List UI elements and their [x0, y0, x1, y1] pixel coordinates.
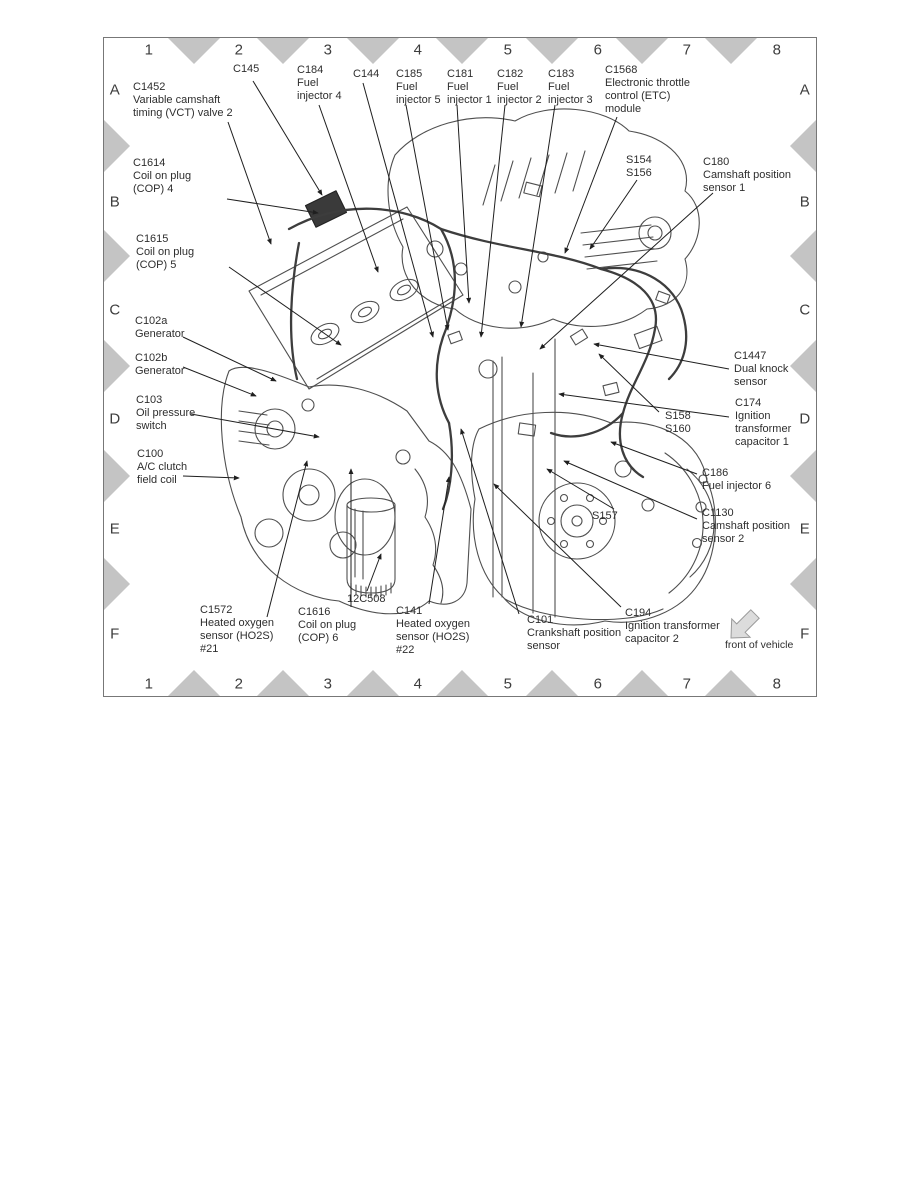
callout-12c508: 12C508 — [347, 593, 397, 606]
callout-c101: C101 Crankshaft position sensor — [527, 614, 627, 653]
grid-triangle — [705, 670, 757, 696]
callout-c1130: C1130 Camshaft position sensor 2 — [702, 507, 798, 546]
connector-code: C182 — [497, 68, 549, 81]
part-code: 12C508 — [347, 593, 397, 606]
connector-code: C185 — [396, 68, 448, 81]
connector-desc: Dual knock sensor — [734, 363, 794, 389]
grid-triangle — [104, 450, 130, 502]
callout-c100: C100 A/C clutch field coil — [137, 448, 193, 487]
grid-triangle — [436, 38, 488, 64]
connector-code: C1615 — [136, 233, 202, 246]
grid-triangle — [347, 38, 399, 64]
connector-desc: Coil on plug (COP) 4 — [133, 170, 199, 196]
connector-desc: Heated oxygen sensor (HO2S) #22 — [396, 618, 474, 657]
connector-code: C103 — [136, 394, 200, 407]
connector-code: C1447 — [734, 350, 794, 363]
leader-c182 — [481, 105, 505, 337]
front-of-vehicle-arrow-icon — [731, 610, 759, 638]
connector-desc: Generator — [135, 365, 195, 378]
callout-c1447: C1447 Dual knock sensor — [734, 350, 794, 389]
leader-c1572 — [267, 461, 307, 617]
callout-c194: C194 Ignition transformer capacitor 2 — [625, 607, 731, 646]
grid-col-bottom-8: 8 — [773, 676, 782, 693]
grid-triangle — [436, 670, 488, 696]
connector-code: C102a — [135, 315, 195, 328]
grid-col-top-5: 5 — [504, 42, 513, 59]
callout-c1615: C1615 Coil on plug (COP) 5 — [136, 233, 202, 272]
callout-c1616: C1616 Coil on plug (COP) 6 — [298, 606, 364, 645]
callout-s154-s156: S154 S156 — [626, 154, 666, 180]
connector-code: C100 — [137, 448, 193, 461]
grid-triangles — [104, 38, 816, 696]
connector-desc: Coil on plug (COP) 5 — [136, 246, 202, 272]
grid-triangle — [168, 670, 220, 696]
grid-col-top-7: 7 — [683, 42, 692, 59]
wiring-harness-art — [289, 209, 686, 509]
connector-desc: Heated oxygen sensor (HO2S) #21 — [200, 617, 278, 656]
connector-desc: Fuel injector 4 — [297, 77, 349, 103]
callout-c144: C144 — [353, 68, 393, 81]
manual-diagram-page: 1 2 3 4 5 6 7 8 1 2 3 4 5 6 7 8 A B C D … — [0, 0, 918, 1188]
grid-triangle — [257, 670, 309, 696]
connector-code: C1452 — [133, 81, 233, 94]
connector-desc: A/C clutch field coil — [137, 461, 193, 487]
engine-diagram-art — [103, 37, 817, 697]
grid-triangle — [616, 38, 668, 64]
grid-col-top-4: 4 — [414, 42, 423, 59]
connector-desc: Crankshaft position sensor — [527, 627, 627, 653]
splice-code: S158 S160 — [665, 410, 705, 436]
connector-desc: Camshaft position sensor 1 — [703, 169, 799, 195]
leader-c185 — [406, 105, 448, 330]
grid-row-right-a: A — [800, 82, 811, 99]
grid-triangle — [104, 558, 130, 610]
connector-desc: Ignition transformer capacitor 1 — [735, 410, 797, 449]
callout-c103: C103 Oil pressure switch — [136, 394, 200, 433]
connector-desc: Fuel injector 2 — [497, 81, 549, 107]
leader-12c508 — [367, 554, 381, 591]
callout-c1452: C1452 Variable camshaft timing (VCT) val… — [133, 81, 233, 120]
grid-triangle — [790, 450, 816, 502]
connector-code: C186 — [702, 467, 782, 480]
grid-col-bottom-5: 5 — [504, 676, 513, 693]
front-of-vehicle-label: front of vehicle — [725, 639, 793, 651]
leader-c184 — [319, 105, 378, 272]
callout-c182: C182 Fuel injector 2 — [497, 68, 549, 107]
connector-code: C183 — [548, 68, 600, 81]
callout-s158-s160: S158 S160 — [665, 410, 705, 436]
grid-row-left-d: D — [109, 411, 120, 428]
grid-row-right-d: D — [799, 411, 810, 428]
connector-code: C102b — [135, 352, 195, 365]
connector-code: C181 — [447, 68, 499, 81]
grid-triangle — [168, 38, 220, 64]
callout-c145: C145 — [233, 63, 273, 76]
grid-triangle — [790, 558, 816, 610]
connector-desc: Fuel injector 1 — [447, 81, 499, 107]
grid-row-right-b: B — [800, 194, 811, 211]
callout-c1572: C1572 Heated oxygen sensor (HO2S) #21 — [200, 604, 278, 656]
grid-col-top-2: 2 — [235, 42, 244, 59]
diagram-frame: 1 2 3 4 5 6 7 8 1 2 3 4 5 6 7 8 A B C D … — [103, 37, 817, 697]
callout-c184: C184 Fuel injector 4 — [297, 64, 349, 103]
connector-code: C1616 — [298, 606, 364, 619]
grid-col-top-8: 8 — [773, 42, 782, 59]
callout-c141: C141 Heated oxygen sensor (HO2S) #22 — [396, 605, 474, 657]
leader-c1452 — [228, 122, 271, 244]
leader-c1568 — [565, 117, 617, 253]
connector-code: C1614 — [133, 157, 199, 170]
connector-desc: Electronic throttle control (ETC) module — [605, 77, 699, 116]
connector-desc: Fuel injector 6 — [702, 480, 782, 493]
connector-code: C141 — [396, 605, 474, 618]
callout-c174: C174 Ignition transformer capacitor 1 — [735, 397, 797, 449]
grid-col-bottom-6: 6 — [594, 676, 603, 693]
grid-col-top-6: 6 — [594, 42, 603, 59]
connector-code: C144 — [353, 68, 393, 81]
grid-row-right-e: E — [800, 521, 811, 538]
callout-c1614: C1614 Coil on plug (COP) 4 — [133, 157, 199, 196]
connector-code: C174 — [735, 397, 797, 410]
connector-desc: Fuel injector 5 — [396, 81, 448, 107]
grid-triangle — [104, 230, 130, 282]
grid-row-left-f: F — [110, 626, 120, 643]
leader-c194 — [494, 484, 621, 607]
splice-code: S154 S156 — [626, 154, 666, 180]
leader-c1615 — [229, 267, 341, 345]
leader-c144 — [363, 83, 433, 337]
grid-triangle — [526, 670, 578, 696]
connector-code: C180 — [703, 156, 799, 169]
connector-desc: Camshaft position sensor 2 — [702, 520, 798, 546]
leader-c102a — [183, 337, 276, 381]
grid-row-left-e: E — [110, 521, 121, 538]
grid-col-bottom-7: 7 — [683, 676, 692, 693]
leader-c181 — [457, 105, 469, 303]
callout-c102a: C102a Generator — [135, 315, 195, 341]
callout-c186: C186 Fuel injector 6 — [702, 467, 782, 493]
callout-c102b: C102b Generator — [135, 352, 195, 378]
connector-desc: Ignition transformer capacitor 2 — [625, 620, 731, 646]
grid-triangle — [705, 38, 757, 64]
grid-triangle — [104, 340, 130, 392]
connector-desc: Generator — [135, 328, 195, 341]
grid-col-top-1: 1 — [145, 42, 154, 59]
connector-code: C1130 — [702, 507, 798, 520]
connector-code: C1568 — [605, 64, 699, 77]
grid-col-bottom-1: 1 — [145, 676, 154, 693]
grid-col-bottom-3: 3 — [324, 676, 333, 693]
grid-col-bottom-2: 2 — [235, 676, 244, 693]
connector-code: C101 — [527, 614, 627, 627]
connector-code: C1572 — [200, 604, 278, 617]
grid-triangle — [616, 670, 668, 696]
callout-c183: C183 Fuel injector 3 — [548, 68, 600, 107]
grid-col-bottom-4: 4 — [414, 676, 423, 693]
callout-s157: S157 — [592, 510, 632, 523]
grid-triangle — [257, 38, 309, 64]
leader-c186 — [611, 442, 697, 474]
grid-row-right-f: F — [800, 626, 810, 643]
grid-row-left-c: C — [109, 302, 120, 319]
grid-row-left-b: B — [110, 194, 121, 211]
grid-col-top-3: 3 — [324, 42, 333, 59]
connector-code: C145 — [233, 63, 273, 76]
leader-c183 — [521, 105, 555, 327]
grid-row-right-c: C — [799, 302, 810, 319]
leader-c101 — [461, 429, 519, 614]
connector-desc: Fuel injector 3 — [548, 81, 600, 107]
grid-triangle — [347, 670, 399, 696]
callout-c185: C185 Fuel injector 5 — [396, 68, 448, 107]
leader-c1614 — [227, 199, 318, 213]
connector-desc: Variable camshaft timing (VCT) valve 2 — [133, 94, 233, 120]
grid-triangle — [526, 38, 578, 64]
leader-s154-s156 — [590, 180, 637, 249]
callout-c180: C180 Camshaft position sensor 1 — [703, 156, 799, 195]
grid-triangle — [104, 120, 130, 172]
connector-code: C194 — [625, 607, 731, 620]
splice-code: S157 — [592, 510, 632, 523]
connector-code: C184 — [297, 64, 349, 77]
grid-triangle — [790, 230, 816, 282]
callout-c181: C181 Fuel injector 1 — [447, 68, 499, 107]
callout-c1568: C1568 Electronic throttle control (ETC) … — [605, 64, 699, 116]
connector-desc: Oil pressure switch — [136, 407, 200, 433]
leader-c1447 — [594, 344, 729, 369]
connector-desc: Coil on plug (COP) 6 — [298, 619, 364, 645]
grid-row-left-a: A — [110, 82, 121, 99]
leader-c141 — [429, 477, 449, 604]
